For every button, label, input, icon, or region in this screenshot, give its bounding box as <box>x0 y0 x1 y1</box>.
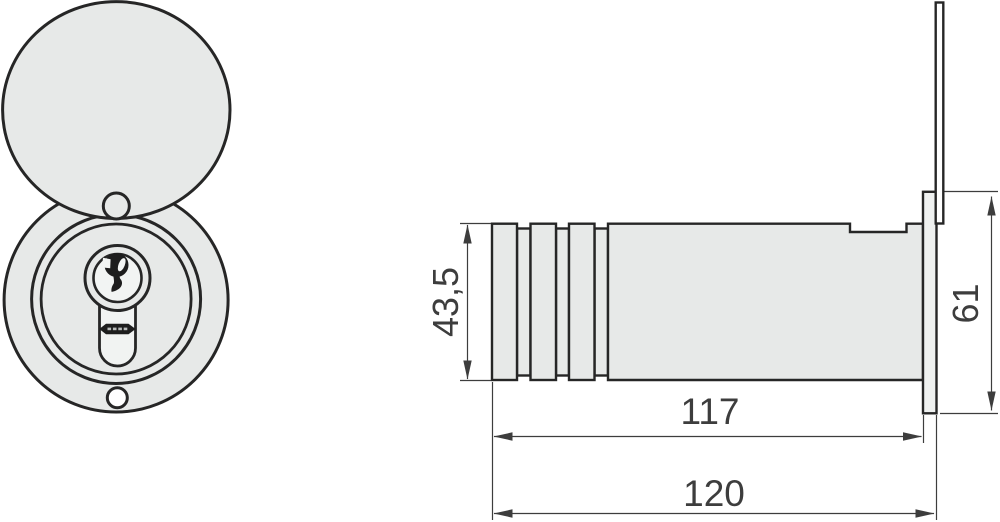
svg-text:117: 117 <box>681 391 740 432</box>
svg-text:61: 61 <box>945 283 986 323</box>
svg-text:43,5: 43,5 <box>425 267 466 337</box>
svg-text:120: 120 <box>683 473 745 514</box>
